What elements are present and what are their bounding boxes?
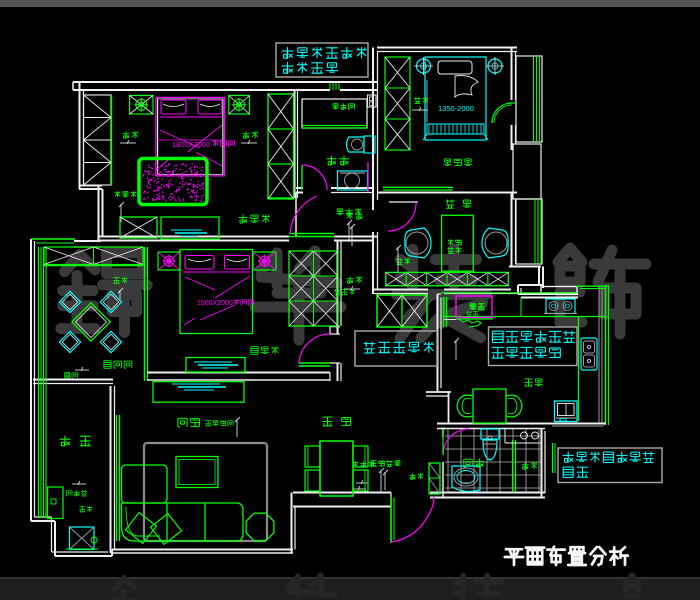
svg-text:1500X2000: 1500X2000 [197, 300, 233, 307]
svg-text:1800X2000: 1800X2000 [172, 140, 210, 149]
svg-text:1350-2000: 1350-2000 [438, 104, 474, 113]
